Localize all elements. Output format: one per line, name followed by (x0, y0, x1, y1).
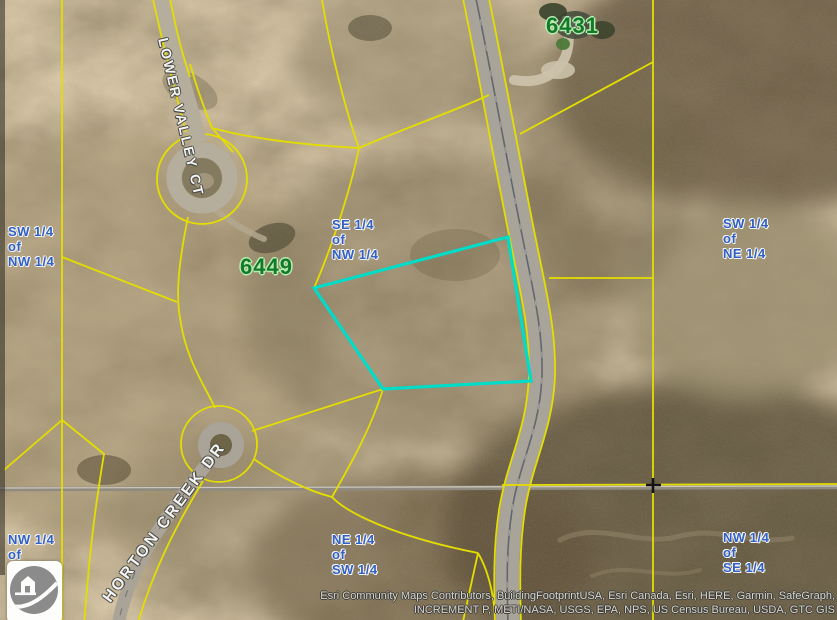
aerial-canvas[interactable] (0, 0, 837, 620)
county-gis-logo (7, 561, 62, 620)
barn-road-logo-icon (7, 561, 62, 620)
map-viewport[interactable]: SW 1/4ofNW 1/4 SE 1/4ofNW 1/4 SW 1/4ofNE… (0, 0, 837, 620)
grain-texture (0, 0, 837, 620)
section-road (0, 486, 837, 489)
imagery-edge (0, 0, 5, 575)
